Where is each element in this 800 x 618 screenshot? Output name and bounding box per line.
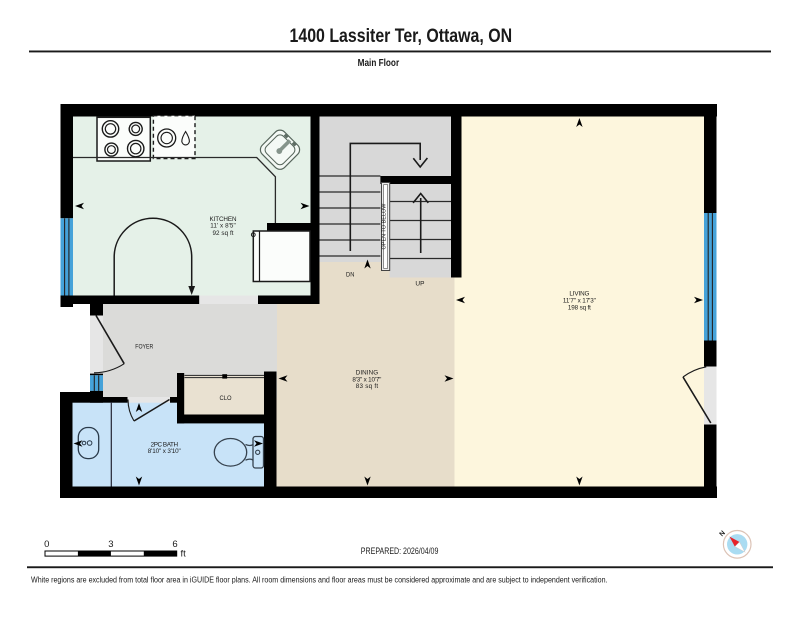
svg-text:83 sq ft: 83 sq ft [356, 383, 379, 390]
svg-text:CLO: CLO [220, 395, 232, 402]
svg-text:0: 0 [44, 539, 49, 550]
svg-text:6: 6 [172, 539, 177, 550]
svg-text:198 sq ft: 198 sq ft [568, 304, 591, 311]
svg-text:8'10" x 3'10": 8'10" x 3'10" [148, 448, 181, 455]
svg-text:ft: ft [181, 549, 187, 560]
svg-text:Main Floor: Main Floor [358, 58, 400, 69]
svg-text:White regions are excluded fro: White regions are excluded from total fl… [31, 575, 608, 584]
svg-text:92 sq ft: 92 sq ft [213, 230, 234, 237]
svg-text:11' x 8'5": 11' x 8'5" [210, 223, 236, 230]
svg-text:FOYER: FOYER [135, 344, 153, 351]
svg-text:PREPARED: 2026/04/09: PREPARED: 2026/04/09 [361, 545, 439, 556]
svg-text:DN: DN [346, 272, 355, 279]
svg-text:1400 Lassiter Ter, Ottawa, ON: 1400 Lassiter Ter, Ottawa, ON [290, 25, 513, 47]
svg-text:3: 3 [108, 539, 113, 550]
svg-text:OPEN TO BELOW: OPEN TO BELOW [382, 203, 388, 250]
svg-text:UP: UP [415, 281, 424, 288]
